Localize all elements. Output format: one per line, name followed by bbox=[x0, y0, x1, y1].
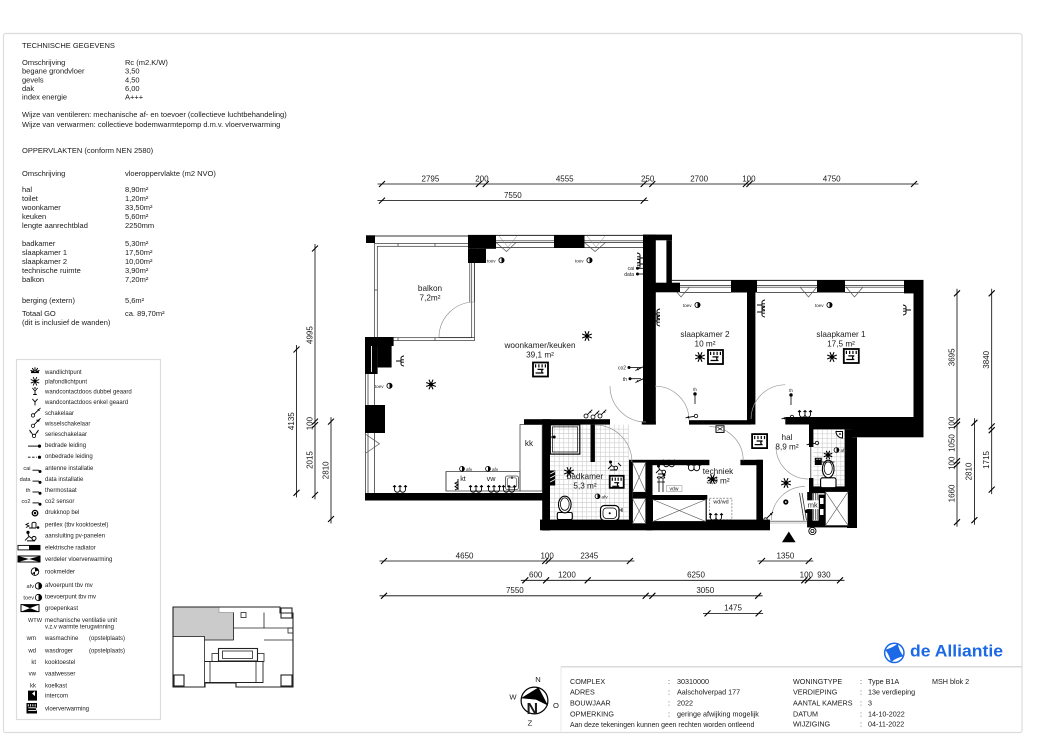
svg-text:kk: kk bbox=[525, 439, 534, 448]
svg-text:kt: kt bbox=[460, 474, 466, 483]
svg-text:100: 100 bbox=[947, 456, 956, 470]
svg-text:afv: afv bbox=[602, 494, 609, 499]
svg-text:slaapkamer 2: slaapkamer 2 bbox=[680, 330, 730, 339]
svg-text:hal: hal bbox=[22, 185, 32, 194]
svg-text:2810: 2810 bbox=[965, 462, 974, 480]
svg-text:toev: toev bbox=[487, 258, 496, 263]
svg-text:verdeler vloerverwarming: verdeler vloerverwarming bbox=[45, 557, 112, 563]
svg-text:VERDIEPING: VERDIEPING bbox=[793, 688, 838, 697]
svg-text:1715: 1715 bbox=[982, 450, 991, 468]
svg-text:woonkamer: woonkamer bbox=[21, 203, 61, 212]
svg-text:4995: 4995 bbox=[305, 326, 314, 344]
svg-text:2345: 2345 bbox=[580, 551, 598, 560]
svg-text:wandcontactdoos enkel geaard: wandcontactdoos enkel geaard bbox=[44, 400, 128, 406]
svg-text:index energie: index energie bbox=[22, 93, 67, 102]
svg-text:10,00m²: 10,00m² bbox=[125, 257, 153, 266]
svg-text:1350: 1350 bbox=[776, 551, 794, 560]
svg-text:toev: toev bbox=[815, 303, 824, 308]
svg-text:data: data bbox=[20, 477, 32, 483]
svg-text:antenne installatie: antenne installatie bbox=[45, 466, 94, 472]
svg-text:Aalscholverpad 177: Aalscholverpad 177 bbox=[677, 688, 740, 697]
svg-text:hal: hal bbox=[782, 433, 793, 442]
svg-text:(dit is inclusief de wanden): (dit is inclusief de wanden) bbox=[22, 318, 111, 327]
svg-text::: : bbox=[668, 710, 670, 719]
svg-text:kooktoestel: kooktoestel bbox=[45, 660, 75, 666]
svg-text:vdw: vdw bbox=[670, 486, 679, 492]
svg-text:1200: 1200 bbox=[558, 571, 576, 580]
svg-text:1050: 1050 bbox=[947, 434, 956, 452]
svg-text::: : bbox=[860, 710, 862, 719]
svg-text:A+++: A+++ bbox=[125, 93, 144, 102]
svg-text:afv: afv bbox=[492, 467, 499, 472]
svg-text:vw: vw bbox=[487, 474, 497, 483]
svg-text:techniek: techniek bbox=[703, 467, 734, 476]
svg-text:2015: 2015 bbox=[305, 451, 314, 469]
svg-text:3695: 3695 bbox=[947, 348, 956, 366]
svg-text:(opstelplaats): (opstelplaats) bbox=[89, 648, 125, 654]
svg-text:kt: kt bbox=[31, 660, 36, 666]
svg-text:Z: Z bbox=[528, 719, 533, 728]
svg-text:vw: vw bbox=[29, 672, 37, 678]
svg-text:serieschakelaar: serieschakelaar bbox=[45, 432, 87, 438]
svg-text:groepenkast: groepenkast bbox=[45, 606, 78, 612]
svg-text:wm: wm bbox=[26, 636, 36, 642]
svg-text:1660: 1660 bbox=[947, 484, 956, 502]
svg-text:mechanische ventilatie unit: mechanische ventilatie unit bbox=[45, 618, 117, 624]
svg-text:N: N bbox=[535, 675, 540, 684]
svg-text:Type B1A: Type B1A bbox=[868, 677, 899, 686]
svg-text:co2 sensor: co2 sensor bbox=[45, 499, 74, 505]
svg-text:17,50m²: 17,50m² bbox=[125, 248, 153, 257]
svg-text:Omschrijving: Omschrijving bbox=[22, 169, 65, 178]
svg-text:aansluiting pv-panelen: aansluiting pv-panelen bbox=[45, 533, 105, 539]
svg-text::: : bbox=[668, 688, 670, 697]
svg-text:co2: co2 bbox=[21, 499, 30, 505]
svg-text:afv: afv bbox=[466, 467, 473, 472]
svg-text:wasmachine: wasmachine bbox=[44, 636, 79, 642]
svg-text:N: N bbox=[527, 701, 539, 718]
svg-text:2022: 2022 bbox=[677, 699, 693, 708]
svg-text:wd/wd: wd/wd bbox=[712, 500, 728, 506]
svg-text:th: th bbox=[623, 377, 627, 383]
svg-text::: : bbox=[668, 677, 670, 686]
svg-text:keuken: keuken bbox=[22, 212, 46, 221]
svg-text:O: O bbox=[553, 701, 559, 710]
svg-text:v.z.v warmte terugwinning: v.z.v warmte terugwinning bbox=[45, 624, 114, 630]
svg-text:3050: 3050 bbox=[696, 586, 714, 595]
svg-text:6250: 6250 bbox=[687, 571, 705, 580]
svg-text::: : bbox=[860, 677, 862, 686]
svg-text:13e verdieping: 13e verdieping bbox=[868, 688, 915, 697]
svg-text:100: 100 bbox=[540, 551, 554, 560]
svg-text:perilex (tbv kooktoestel): perilex (tbv kooktoestel) bbox=[45, 523, 108, 529]
svg-text:onbedrade leiding: onbedrade leiding bbox=[45, 454, 93, 460]
svg-text:schakelaar: schakelaar bbox=[45, 411, 74, 417]
svg-text:bedrade leiding: bedrade leiding bbox=[45, 443, 86, 449]
svg-text:berging (extern): berging (extern) bbox=[22, 296, 75, 305]
svg-text:vloeroppervlakte (m2 NVO): vloeroppervlakte (m2 NVO) bbox=[125, 169, 216, 178]
svg-text:slaapkamer 1: slaapkamer 1 bbox=[816, 330, 866, 339]
svg-text:toev: toev bbox=[683, 303, 692, 308]
svg-text:vaatwesser: vaatwesser bbox=[45, 672, 75, 678]
svg-text:technische ruimte: technische ruimte bbox=[22, 266, 81, 275]
svg-text:ADRES: ADRES bbox=[570, 688, 595, 697]
svg-text:balkon: balkon bbox=[418, 284, 443, 293]
svg-text:wandcontactdoos dubbel geaard: wandcontactdoos dubbel geaard bbox=[44, 390, 132, 396]
svg-text:04-11-2022: 04-11-2022 bbox=[868, 720, 904, 729]
svg-text:8,9 m²: 8,9 m² bbox=[775, 443, 798, 452]
svg-text:toev: toev bbox=[23, 596, 34, 602]
svg-text:250: 250 bbox=[641, 174, 655, 183]
svg-text:4750: 4750 bbox=[823, 174, 841, 183]
svg-text:Wijze van ventileren: mechanis: Wijze van ventileren: mechanische af- en… bbox=[22, 110, 287, 119]
svg-text:toilet: toilet bbox=[22, 194, 39, 203]
svg-text:elektrische radiator: elektrische radiator bbox=[45, 545, 96, 551]
svg-text:8,90m²: 8,90m² bbox=[125, 185, 149, 194]
svg-text:mk: mk bbox=[808, 501, 818, 510]
svg-text:7,20m²: 7,20m² bbox=[125, 275, 149, 284]
svg-text:3: 3 bbox=[868, 699, 872, 708]
svg-text:WONINGTYPE: WONINGTYPE bbox=[793, 677, 842, 686]
svg-text:data installatie: data installatie bbox=[45, 477, 84, 483]
svg-text:2810: 2810 bbox=[321, 461, 330, 479]
svg-text:1475: 1475 bbox=[724, 604, 742, 613]
svg-text:200: 200 bbox=[475, 174, 489, 183]
svg-text:4135: 4135 bbox=[287, 412, 296, 430]
svg-text:100: 100 bbox=[742, 174, 756, 183]
svg-text:slaapkamer 1: slaapkamer 1 bbox=[22, 248, 67, 257]
svg-text:Omschrijving: Omschrijving bbox=[22, 58, 65, 67]
svg-text:co2: co2 bbox=[618, 366, 626, 372]
svg-text:koelkast: koelkast bbox=[45, 684, 67, 690]
svg-text:39,1 m²: 39,1 m² bbox=[526, 351, 554, 360]
svg-text:cai: cai bbox=[23, 466, 30, 472]
svg-text:4650: 4650 bbox=[456, 551, 474, 560]
svg-text:afvoerpunt tbv mv: afvoerpunt tbv mv bbox=[45, 583, 93, 589]
svg-text:BOUWJAAR: BOUWJAAR bbox=[570, 699, 611, 708]
svg-text:7550: 7550 bbox=[504, 191, 522, 200]
svg-text:OPPERVLAKTEN (conform NEN 2580: OPPERVLAKTEN (conform NEN 2580) bbox=[22, 146, 154, 155]
svg-text:Rc (m2.K/W): Rc (m2.K/W) bbox=[125, 58, 168, 67]
svg-text:COMPLEX: COMPLEX bbox=[570, 677, 605, 686]
svg-text::: : bbox=[668, 699, 670, 708]
svg-text:afv: afv bbox=[841, 448, 848, 453]
svg-text:balkon: balkon bbox=[22, 275, 44, 284]
svg-text:wd: wd bbox=[27, 648, 36, 654]
svg-text:thermostaat: thermostaat bbox=[45, 488, 77, 494]
svg-text:5,3 m²: 5,3 m² bbox=[573, 482, 596, 491]
svg-text:14-10-2022: 14-10-2022 bbox=[868, 710, 905, 719]
svg-text:3,90m²: 3,90m² bbox=[125, 266, 149, 275]
svg-text:2250mm: 2250mm bbox=[125, 221, 154, 230]
svg-text:AANTAL KAMERS: AANTAL KAMERS bbox=[793, 699, 853, 708]
svg-text:Aan deze tekeningen kunnen gee: Aan deze tekeningen kunnen geen rechten … bbox=[570, 722, 754, 729]
svg-text:plafondlichtpunt: plafondlichtpunt bbox=[45, 379, 87, 385]
svg-text:vloerverwarming: vloerverwarming bbox=[45, 707, 89, 713]
svg-text:100: 100 bbox=[947, 416, 956, 430]
svg-text:drukknop bel: drukknop bel bbox=[45, 510, 79, 516]
svg-text:TECHNISCHE GEGEVENS: TECHNISCHE GEGEVENS bbox=[22, 41, 115, 50]
svg-text:rookmelder: rookmelder bbox=[45, 570, 75, 576]
svg-text:7550: 7550 bbox=[506, 586, 524, 595]
svg-text:WIJZIGING: WIJZIGING bbox=[793, 720, 831, 729]
svg-text:geringe afwijking mogelijk: geringe afwijking mogelijk bbox=[677, 710, 759, 719]
svg-text:5,6m²: 5,6m² bbox=[125, 296, 145, 305]
svg-text:4555: 4555 bbox=[556, 174, 574, 183]
svg-text:1,20m²: 1,20m² bbox=[125, 194, 149, 203]
svg-text:ca. 89,70m²: ca. 89,70m² bbox=[125, 309, 165, 318]
svg-text:th: th bbox=[26, 488, 31, 494]
svg-text:toev: toev bbox=[575, 258, 584, 263]
svg-text:(opstelplaats): (opstelplaats) bbox=[89, 636, 125, 642]
svg-text:toev: toev bbox=[375, 384, 384, 389]
svg-text:de Alliantie: de Alliantie bbox=[910, 642, 1003, 661]
svg-text:W: W bbox=[509, 693, 517, 702]
svg-text:afv: afv bbox=[27, 584, 35, 590]
svg-text:OPMERKING: OPMERKING bbox=[570, 710, 614, 719]
svg-text:th: th bbox=[693, 387, 697, 392]
svg-text:5,30m²: 5,30m² bbox=[125, 239, 149, 248]
svg-text:wisselschakelaar: wisselschakelaar bbox=[44, 421, 90, 427]
svg-text:5,60m²: 5,60m² bbox=[125, 212, 149, 221]
svg-text:30310000: 30310000 bbox=[677, 677, 709, 686]
svg-text::: : bbox=[860, 720, 862, 729]
svg-text:Wijze van verwarmen: collectie: Wijze van verwarmen: collectieve bodemwa… bbox=[22, 120, 280, 129]
svg-text:100: 100 bbox=[305, 416, 314, 430]
svg-text:100: 100 bbox=[800, 571, 814, 580]
svg-text:intercom: intercom bbox=[45, 694, 68, 700]
svg-text:data: data bbox=[624, 272, 634, 278]
svg-text:badkamer: badkamer bbox=[22, 239, 56, 248]
svg-text:toevoerpunt tbv mv: toevoerpunt tbv mv bbox=[45, 595, 96, 601]
svg-text:wasdroger: wasdroger bbox=[44, 648, 73, 654]
svg-text:DATUM: DATUM bbox=[793, 710, 818, 719]
svg-text:lengte aanrechtblad: lengte aanrechtblad bbox=[22, 221, 88, 230]
svg-text:th: th bbox=[789, 388, 793, 393]
svg-text:WTW: WTW bbox=[28, 618, 43, 624]
svg-text:2795: 2795 bbox=[422, 174, 440, 183]
svg-text::: : bbox=[860, 699, 862, 708]
svg-text:woonkamer/keuken: woonkamer/keuken bbox=[504, 341, 576, 350]
svg-text:Totaal GO: Totaal GO bbox=[22, 309, 56, 318]
svg-text::: : bbox=[860, 688, 862, 697]
svg-text:7,2m²: 7,2m² bbox=[420, 294, 441, 303]
svg-text:wandlichtpunt: wandlichtpunt bbox=[44, 370, 82, 376]
svg-text:3840: 3840 bbox=[982, 350, 991, 368]
svg-text:slaapkamer 2: slaapkamer 2 bbox=[22, 257, 67, 266]
svg-text:2700: 2700 bbox=[690, 174, 708, 183]
svg-text:kk: kk bbox=[30, 684, 37, 690]
svg-text:MSH blok 2: MSH blok 2 bbox=[932, 677, 969, 686]
svg-text:600: 600 bbox=[529, 571, 543, 580]
svg-text:33,50m²: 33,50m² bbox=[125, 203, 153, 212]
svg-text:930: 930 bbox=[817, 571, 831, 580]
svg-text:17,5 m²: 17,5 m² bbox=[827, 340, 855, 349]
svg-text:10 m²: 10 m² bbox=[695, 340, 716, 349]
